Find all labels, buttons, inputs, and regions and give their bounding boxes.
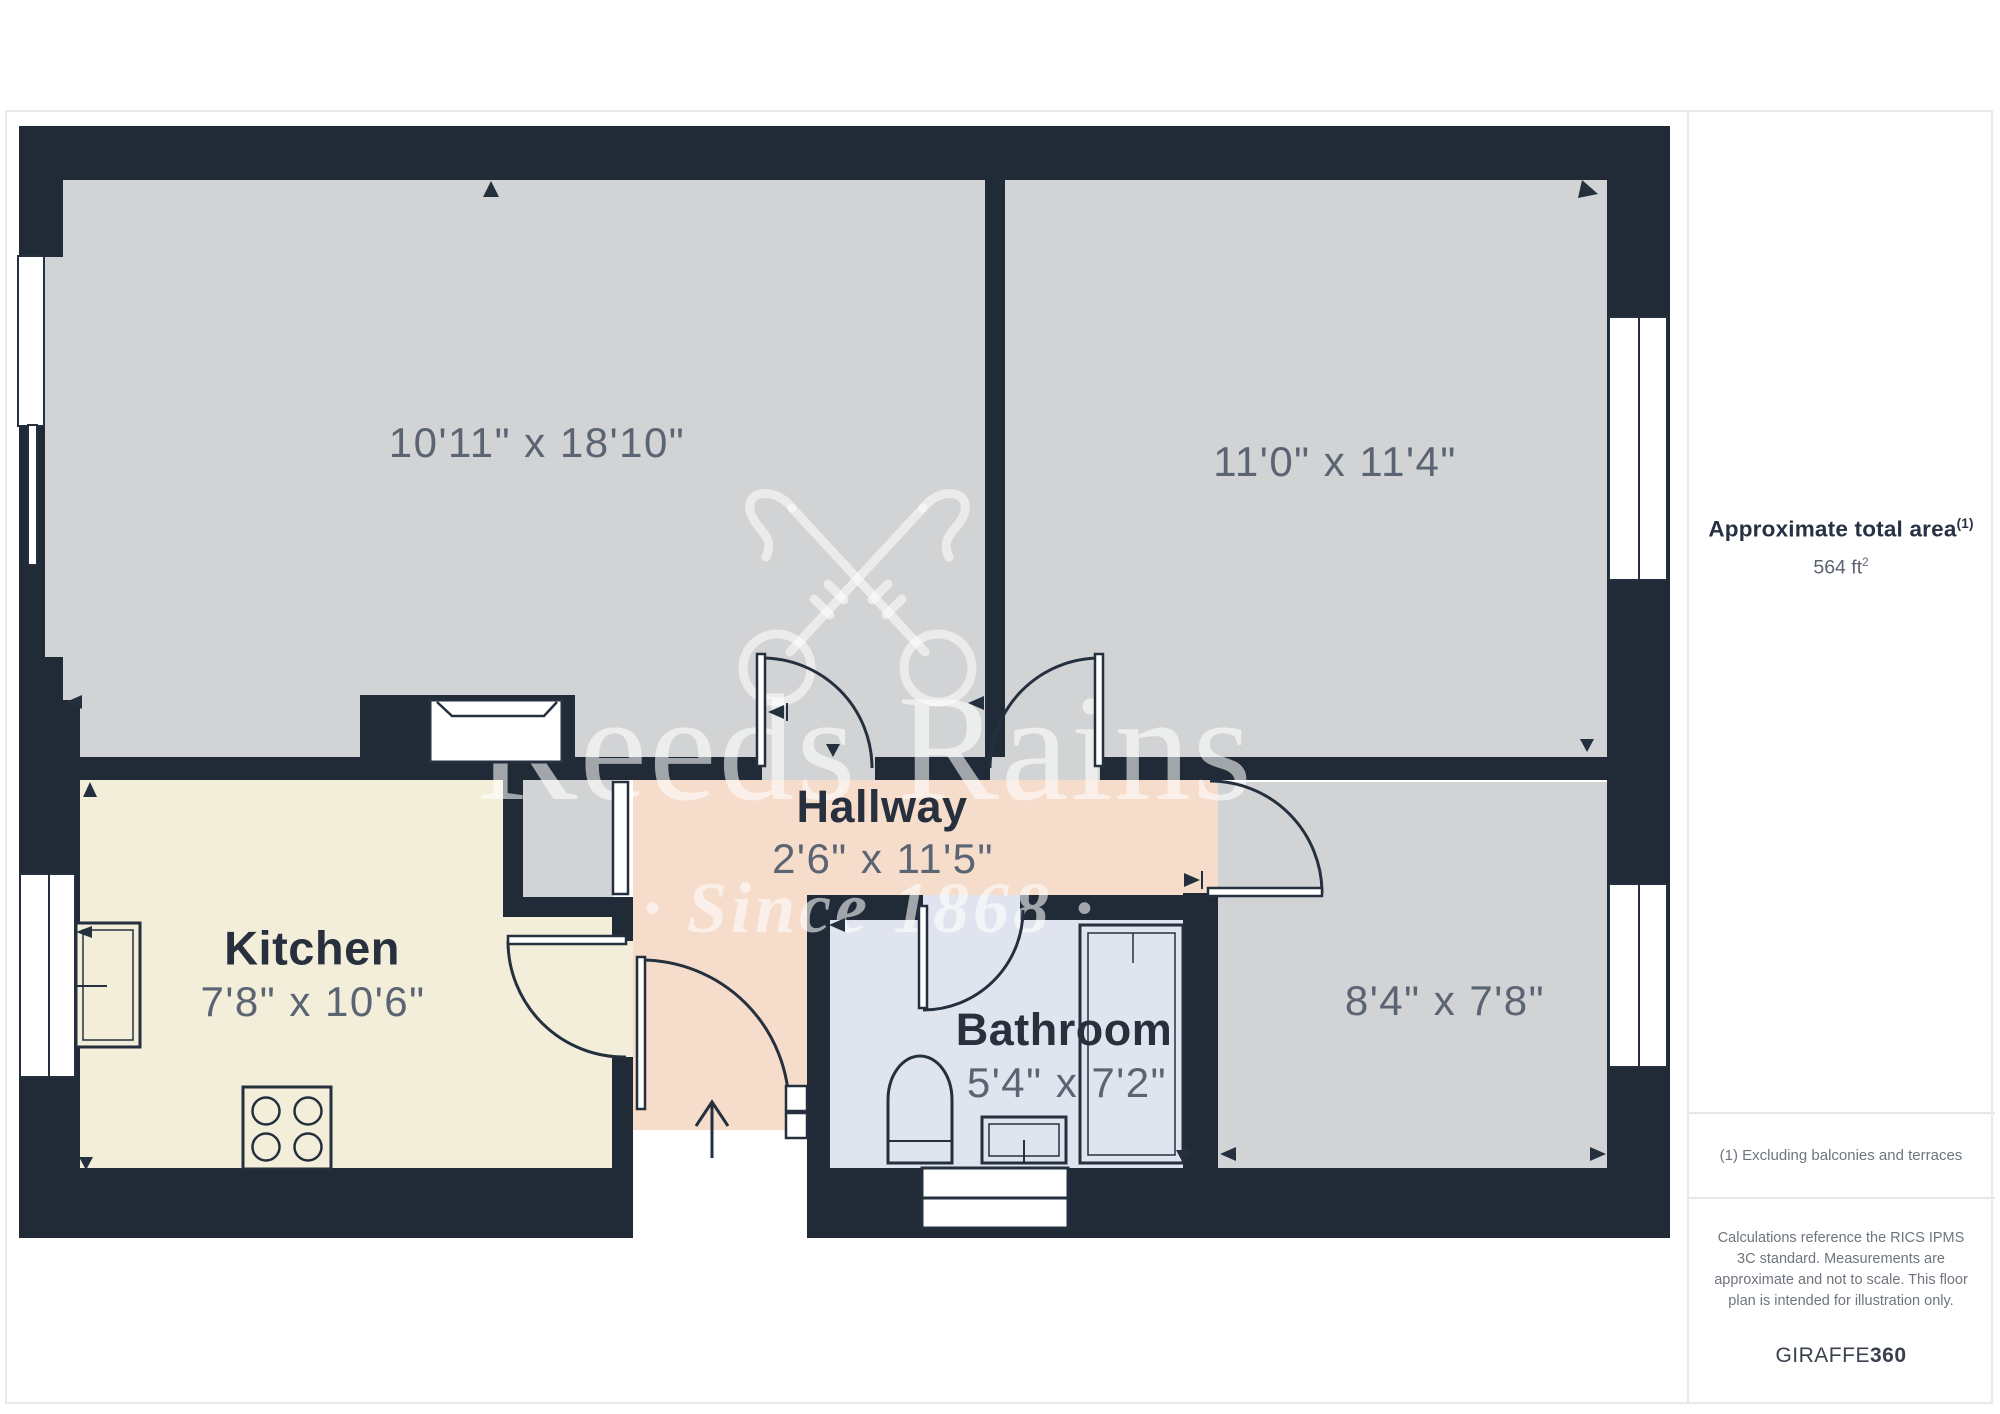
window-mullion [48,875,50,1076]
doorway-kitchen [612,941,633,1057]
sidebar-footnote: (1) Excluding balconies and terraces [1697,1147,1985,1164]
window-icon [1608,316,1668,581]
bathroom-label: Bathroom [956,1004,1173,1056]
window-mullion [1638,885,1640,1066]
footnote-marker: (1) [1957,516,1974,531]
sidebar-rule [1687,1197,1995,1199]
hallway-leg-floor [633,780,807,1130]
wall-cupboard-left [503,757,523,897]
window-icon [19,873,76,1078]
hallway-dims: 2'6" x 11'5" [772,835,994,883]
door-cupboard [613,782,628,894]
wall-chimney-breast [360,695,575,780]
wall-bottom [19,1168,1670,1238]
total-area-value: 564 ft2 [1687,556,1995,580]
entrance-opening [633,1130,807,1238]
living-room-dims: 10'11" x 18'10" [389,419,685,467]
sidebar-divider [1687,110,1689,1404]
window-recess [45,257,63,657]
wall-top [19,126,1670,180]
wall-right [1607,126,1670,1238]
wall-living-bedroom [985,180,1005,757]
bedroom-1-dims: 11'0" x 11'4" [1213,438,1457,486]
hallway-cupboard-floor [523,780,613,897]
giraffe360-logo-text: GIRAFFE [1775,1344,1870,1367]
doorway-bedroom-1 [990,757,1100,780]
doorway-bathroom [923,895,1020,920]
bathroom-dims: 5'4" x 7'2" [967,1059,1167,1107]
giraffe360-logo: GIRAFFE360 [1687,1344,1995,1368]
doorway-living-room [762,757,875,780]
hallway-label: Hallway [796,781,967,833]
total-area-label: Approximate total area(1) [1687,516,1995,543]
sidebar-disclaimer: Calculations reference the RICS IPMS 3C … [1713,1228,1969,1312]
living-room-floor [63,180,985,757]
bedroom-2-floor [1218,782,1607,1168]
kitchen-label: Kitchen [224,921,400,976]
window-icon [1608,883,1668,1068]
window-mullion [1638,318,1640,579]
wall-hallway-bathroom [807,897,830,1168]
kitchen-dims: 7'8" x 10'6" [201,978,426,1026]
sidebar-rule [1687,1112,1995,1114]
wall-bathroom-right [1183,893,1218,1168]
wall-cupboard-bottom [503,897,633,917]
window-icon [17,255,45,427]
bedroom-2-dims: 8'4" x 7'8" [1345,977,1545,1025]
floorplan-canvas: Reeds Rains · Since 1868 · [0,0,2000,1414]
